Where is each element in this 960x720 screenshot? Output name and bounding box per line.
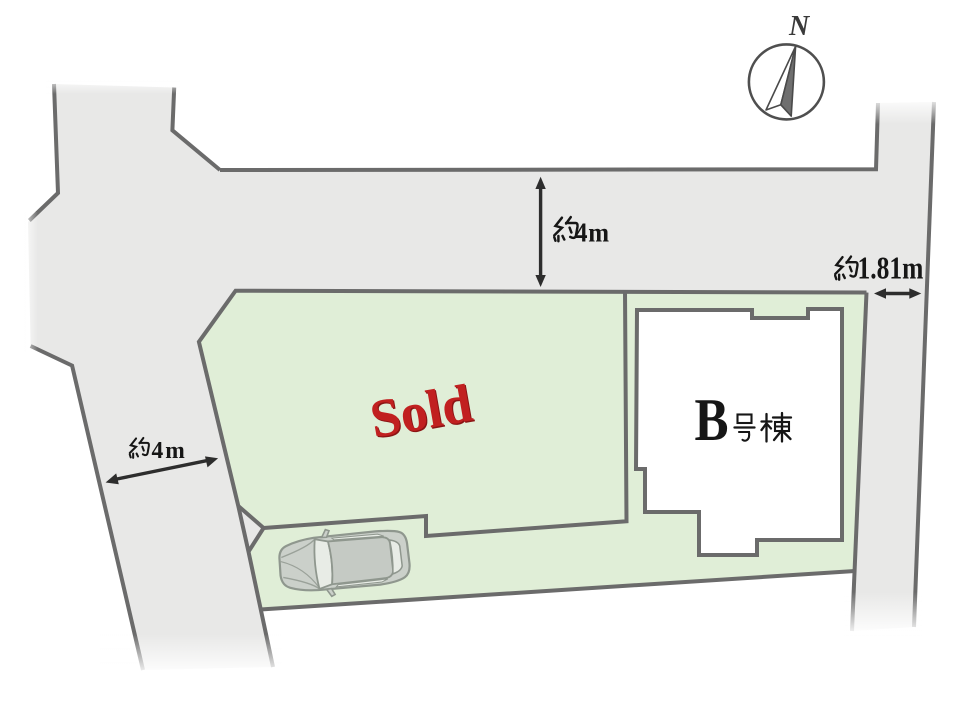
svg-text:N: N: [788, 11, 811, 42]
svg-text:1.81m: 1.81m: [858, 251, 924, 286]
svg-text:4m: 4m: [152, 437, 187, 464]
svg-text:B: B: [695, 387, 729, 454]
svg-text:4m: 4m: [575, 217, 610, 247]
